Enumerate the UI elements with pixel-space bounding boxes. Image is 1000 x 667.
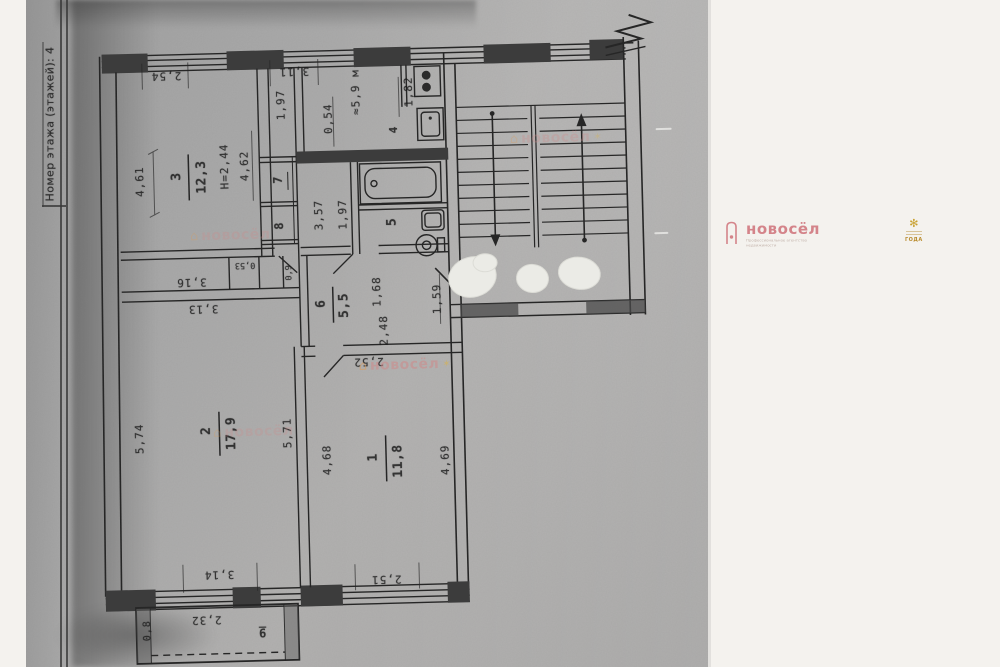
floor-plan-drawing: 3 12,3 Н=2,44 4,62 2 17,9 1 11,8 6 5,5 4… <box>0 0 1000 667</box>
dim-1-59: 1,59 <box>430 284 444 315</box>
dim-4-69: 4,69 <box>438 444 452 475</box>
dim-3-14: 3,14 <box>204 568 235 582</box>
paper-scratch <box>654 232 668 234</box>
dim-1-82: 1,82 <box>402 76 416 107</box>
badge-divider <box>906 234 922 235</box>
room-9-number: 9 <box>259 626 267 640</box>
room-1-area: 11,8 <box>390 444 406 478</box>
height-note: Н=2,44 <box>217 143 231 189</box>
dim-2-52: 2,52 <box>353 355 384 369</box>
dim-3-13: 3,13 <box>188 302 219 316</box>
dim-5-74: 5,74 <box>133 423 147 454</box>
whiteout-blobs <box>444 248 604 303</box>
agency-logo: новосёл Профессиональное агентство недви… <box>724 220 923 256</box>
dim-0-54: 0,54 <box>321 103 335 134</box>
dim-0-53: 0,53 <box>235 260 256 271</box>
dim-0-9: 0,9 <box>284 265 294 281</box>
room-3-number: 3 <box>169 173 184 181</box>
dim-4-61: 4,61 <box>133 166 147 197</box>
staircase <box>456 103 629 249</box>
dim-1-68: 1,68 <box>370 276 384 307</box>
dim-3-57: 3,57 <box>312 200 326 231</box>
dim-5-71: 5,71 <box>281 418 295 449</box>
washbasin-icon <box>422 210 445 231</box>
dim-3-16: 3,16 <box>176 276 207 290</box>
dim-3-11: 3,11 <box>279 65 310 79</box>
room-6-number: 6 <box>313 300 328 308</box>
room-2-number: 2 <box>199 427 214 435</box>
agency-tagline: Профессиональное агентство недвижимости <box>746 238 829 248</box>
room-6-area: 5,5 <box>336 293 352 318</box>
room-5-number: 5 <box>384 218 399 226</box>
stove-icon <box>414 66 441 97</box>
badge-divider <box>906 231 922 232</box>
room-1-number: 1 <box>366 454 381 462</box>
dim-2-54: 2,54 <box>151 69 182 83</box>
stair-bottom-wall <box>450 300 645 318</box>
dimension-lines <box>142 56 448 595</box>
room-4-number: 4 <box>387 127 400 134</box>
dim-2-48: 2,48 <box>377 315 391 346</box>
scanned-floor-plan-page: Номер этажа (этажей): 4 <box>0 0 1000 667</box>
top-wall-windows <box>101 39 633 74</box>
award-badge: ✻ ГОДА <box>905 218 923 243</box>
room-8-number: 8 <box>272 222 286 230</box>
outer-walls <box>91 37 652 603</box>
laurel-icon: ✻ <box>909 218 918 229</box>
bathtub-icon <box>359 162 441 204</box>
dim-2-51: 2,51 <box>371 573 402 587</box>
dim-1-97-top: 1,97 <box>274 90 288 121</box>
door-logo-icon <box>724 220 739 246</box>
badge-text: ГОДА <box>905 237 923 243</box>
interior-walls <box>116 63 468 592</box>
dim-4-68: 4,68 <box>320 444 334 475</box>
paper-scratch <box>656 128 672 130</box>
dim-2-32: 2,32 <box>191 613 222 627</box>
dim-4-62: 4,62 <box>238 151 252 182</box>
kitchen-area-note: ≈5,9 м <box>348 69 362 115</box>
agency-brand-name: новосёл <box>746 220 896 238</box>
dim-1-97-mid: 1,97 <box>336 199 350 230</box>
dim-0-8: 0,8 <box>142 620 154 641</box>
kitchen-sink-icon <box>417 108 444 141</box>
room-7-number: 7 <box>271 176 285 184</box>
room-3-area: 12,3 <box>194 160 210 194</box>
room-2-area: 17,9 <box>224 417 240 451</box>
